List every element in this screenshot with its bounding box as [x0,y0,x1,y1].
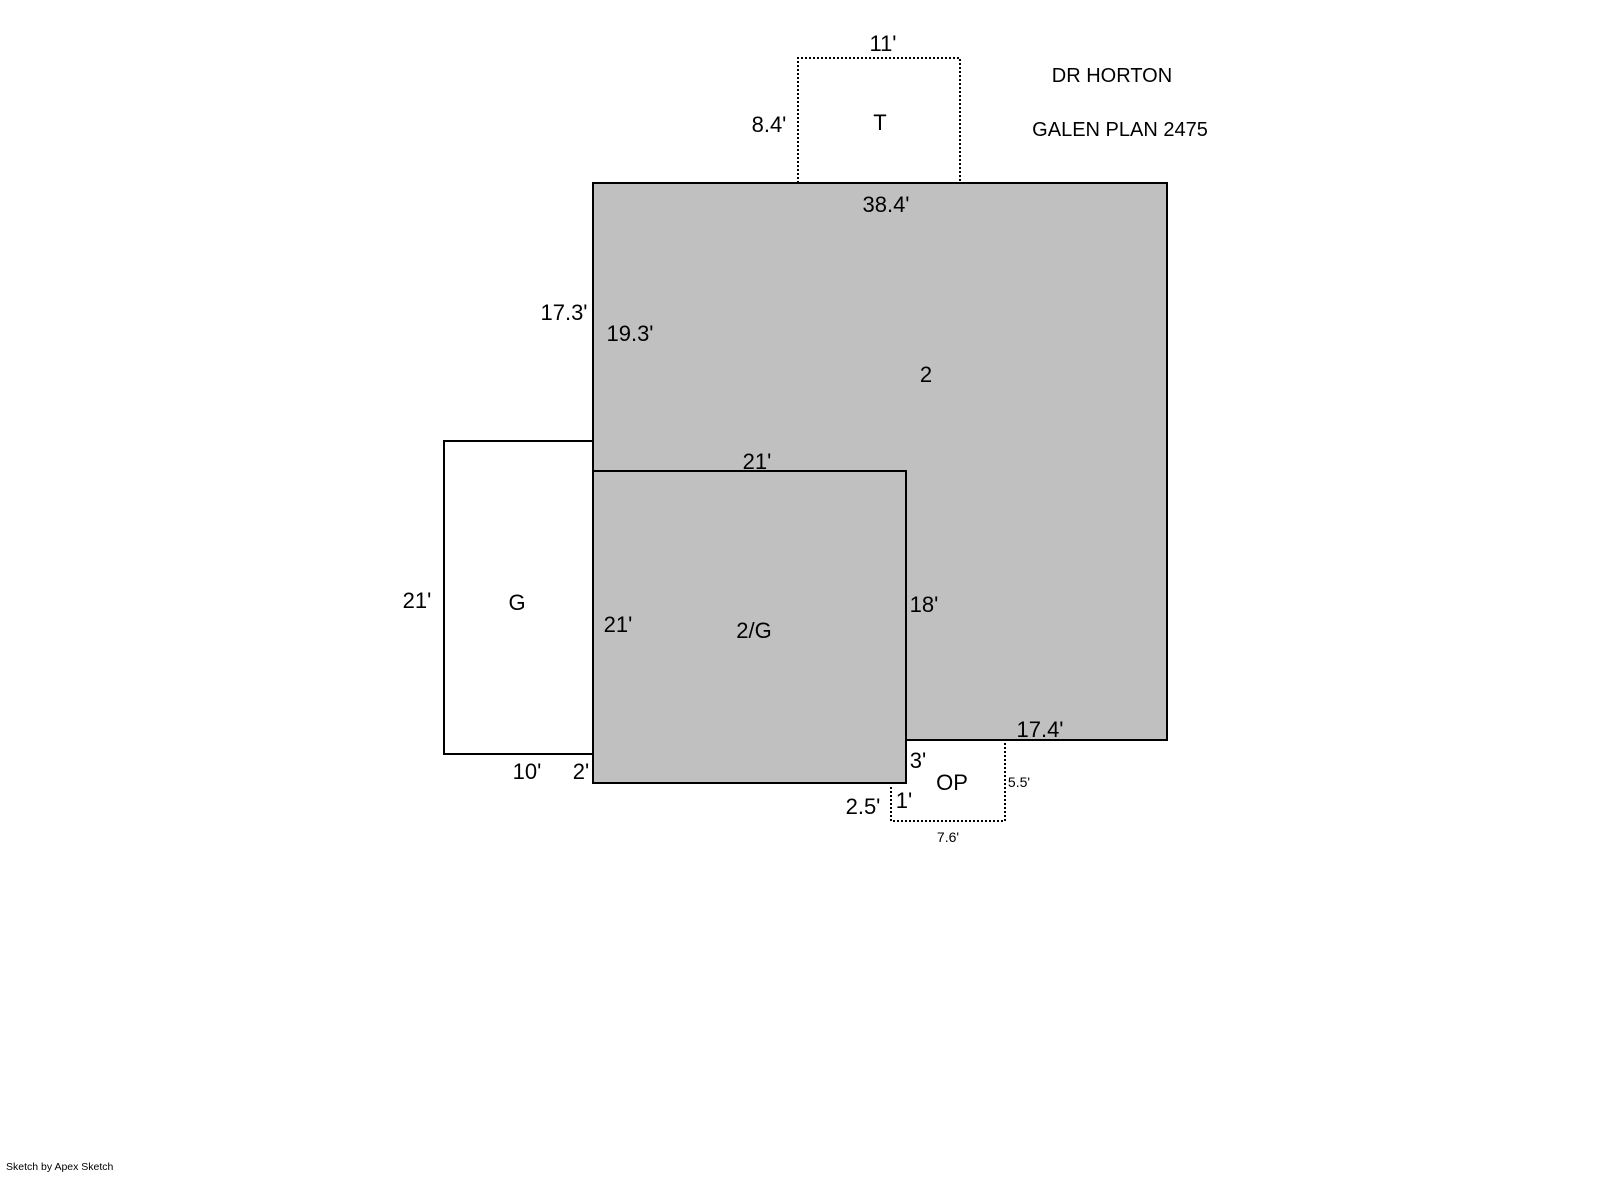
svg-text:8.4': 8.4' [752,112,787,137]
svg-text:2/G: 2/G [736,618,771,643]
svg-text:17.4': 17.4' [1016,717,1063,742]
svg-text:2: 2 [920,362,932,387]
svg-text:Sketch by Apex Sketch: Sketch by Apex Sketch [6,1161,114,1173]
svg-text:1': 1' [896,788,912,813]
svg-text:11': 11' [869,31,896,56]
svg-text:GALEN PLAN 2475: GALEN PLAN 2475 [1032,119,1208,141]
svg-text:G: G [508,590,525,615]
svg-text:7.6': 7.6' [937,829,959,845]
svg-text:17.3': 17.3' [540,300,587,325]
svg-text:2': 2' [573,759,589,784]
svg-text:3': 3' [910,748,926,773]
svg-text:10': 10' [513,759,542,784]
svg-text:DR HORTON: DR HORTON [1052,65,1172,87]
svg-text:38.4': 38.4' [862,192,909,217]
svg-text:18': 18' [910,592,939,617]
svg-text:T: T [873,110,886,135]
svg-text:19.3': 19.3' [606,321,653,346]
svg-text:OP: OP [936,770,968,795]
svg-text:21': 21' [403,588,432,613]
svg-text:21': 21' [604,612,633,637]
svg-text:5.5': 5.5' [1008,774,1030,790]
svg-text:21': 21' [743,449,772,474]
svg-text:2.5': 2.5' [846,794,881,819]
